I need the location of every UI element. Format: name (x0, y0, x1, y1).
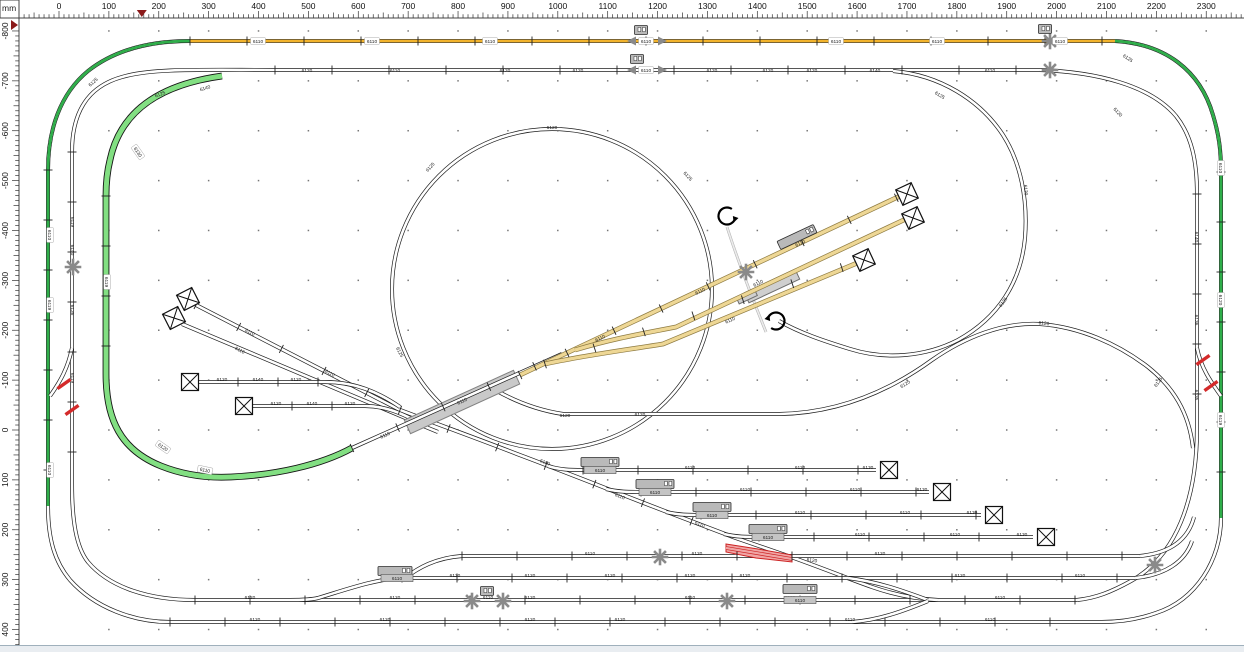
track-part-label: 6120 (245, 595, 256, 601)
track-part-label: 6120 (525, 617, 536, 623)
track-part-label: 6120 (707, 68, 718, 74)
ruler-left-number: -800 (0, 22, 10, 39)
buffer-stop-icon[interactable] (881, 462, 898, 479)
uncoupler-star-icon[interactable] (465, 594, 479, 608)
window-bottom-edge (0, 645, 1244, 652)
track-part-label: 6110 (831, 39, 842, 45)
track-part-label: 6120 (250, 617, 261, 623)
ruler-top-number: 1000 (548, 1, 567, 11)
track-part-label: 6130 (1017, 532, 1028, 538)
uncoupler-star-icon[interactable] (66, 260, 80, 274)
track-part-label: 6110 (900, 510, 911, 516)
track-part-label: 6140 (307, 401, 318, 407)
locomotive-icon[interactable] (1039, 25, 1052, 34)
ruler-left-number: 400 (0, 622, 10, 636)
ruler-left-number: 100 (0, 473, 10, 487)
track-part-label: 6120 (685, 573, 696, 579)
track-part-label: 6120 (740, 573, 751, 579)
uncoupler-star-icon[interactable] (720, 594, 734, 608)
ruler-left-number: -200 (0, 321, 10, 338)
ruler-top-number: 400 (251, 1, 265, 11)
track-part-label: 6110 (795, 598, 806, 604)
track-part-label: 6120 (635, 412, 646, 418)
ruler-left-number: 0 (0, 427, 10, 432)
ruler-top-number: 700 (401, 1, 415, 11)
track-part-label: 6120 (525, 573, 536, 579)
track-part-label: 6110 (1075, 573, 1086, 579)
track-part-label: 6110 (46, 465, 52, 476)
track-part-label: 6110 (932, 39, 943, 45)
ruler-top-number: 1400 (748, 1, 767, 11)
track-part-label: 6120 (560, 413, 571, 419)
ruler-top-number: 800 (451, 1, 465, 11)
track-part-label: 6110 (707, 513, 718, 519)
track-part-label: 6110 (855, 532, 866, 538)
ruler-top-number: 200 (152, 1, 166, 11)
track-part-label: 6120 (500, 68, 511, 74)
ruler-left-number: -400 (0, 222, 10, 239)
ruler-left-number: -300 (0, 272, 10, 289)
track-part-label: 6120 (547, 125, 558, 131)
ruler-top-number: 1200 (648, 1, 667, 11)
locomotive-icon[interactable] (783, 585, 817, 594)
track-part-label: 6110 (995, 595, 1006, 601)
track-part-label: 6136 (1193, 315, 1199, 326)
track-part-label: 6110 (585, 551, 596, 557)
locomotive-icon[interactable] (749, 525, 787, 534)
track-part-label: 6120 (955, 573, 966, 579)
uncoupler-star-icon[interactable] (739, 265, 753, 279)
ruler-left-number: 200 (0, 522, 10, 536)
ruler-top-number: 0 (57, 1, 62, 11)
track-part-label: 6110 (795, 465, 806, 471)
track-part-label: 6120 (1217, 295, 1223, 306)
track-part-label: 6119 (46, 300, 52, 311)
track-part-label: 6110 (650, 490, 661, 496)
track-part-label: 6110 (253, 39, 264, 45)
track-part-label: 6110 (685, 465, 696, 471)
ruler-left-number: -500 (0, 172, 10, 189)
track-part-label: 6120 (1038, 320, 1050, 327)
ruler-top-number: 1900 (997, 1, 1016, 11)
track-part-label: 6120 (605, 573, 616, 579)
buffer-stop-icon[interactable] (182, 374, 199, 391)
track-part-label: 6140 (870, 68, 881, 74)
track-part-label: 6120 (302, 68, 313, 74)
ruler-top-number: 100 (102, 1, 116, 11)
track-part-label: 6120 (1022, 184, 1029, 195)
track-part-label: 6140 (253, 377, 264, 383)
track-part-label: 6110 (390, 68, 401, 74)
ruler-top-number: 1800 (947, 1, 966, 11)
track-part-label: 6130 (917, 487, 928, 493)
ruler-top-number: 1300 (698, 1, 717, 11)
ruler-top[interactable]: 0100200300400500600700800900100011001200… (0, 0, 1244, 18)
ruler-left-number: -700 (0, 72, 10, 89)
ruler-top-number: 1100 (599, 1, 618, 11)
locomotive-icon[interactable] (481, 587, 494, 596)
track-part-label: 6119 (1217, 415, 1223, 426)
ruler-top-number: 300 (202, 1, 216, 11)
track-part-label: 6120 (217, 377, 228, 383)
track-part-label: 6110 (641, 39, 652, 45)
track-plan-canvas[interactable]: 6110611061106110611061106110612061106120… (0, 0, 1244, 652)
track-part-label: 6110 (850, 487, 861, 493)
locomotive-icon[interactable] (636, 480, 674, 489)
track-part-label: 6119 (69, 373, 75, 384)
locomotive-icon[interactable] (581, 458, 619, 467)
ruler-left-number: -600 (0, 122, 10, 139)
track-part-label: 6110 (795, 510, 806, 516)
ruler-left-number: 300 (0, 572, 10, 586)
track-part-label: 6110 (740, 487, 751, 493)
track-part-label: 6110 (392, 576, 403, 582)
track-part-label: 6130 (863, 465, 874, 471)
track-part-label: 6120 (380, 617, 391, 623)
track-part-label: 6135 (1193, 390, 1199, 401)
track-part-label: 6120 (573, 68, 584, 74)
uncoupler-star-icon[interactable] (496, 594, 510, 608)
ruler-top-number: 2200 (1147, 1, 1166, 11)
uncoupler-star-icon[interactable] (1148, 558, 1162, 572)
track-part-label: 6110 (1055, 39, 1066, 45)
uncoupler-star-icon[interactable] (653, 550, 667, 564)
track-part-label: 6120 (763, 68, 774, 74)
track-part-label: 6120 (271, 401, 282, 407)
track-part-label: 6120 (692, 551, 703, 557)
track-part-label: 6120 (875, 551, 886, 557)
ruler-top-number: 900 (501, 1, 515, 11)
buffer-stop-icon[interactable] (236, 398, 253, 415)
ruler-top-number: 2100 (1097, 1, 1116, 11)
buffer-stop-icon[interactable] (986, 507, 1003, 524)
track-part-label: 6110 (985, 617, 996, 623)
track-part-label: 6110 (685, 595, 696, 601)
track-part-label: 6136 (69, 305, 75, 316)
track-part-label: 6110 (641, 68, 652, 74)
track-part-label: 6110 (950, 532, 961, 538)
track-part-label: 6120 (615, 617, 626, 623)
track-part-label: 6110 (1217, 163, 1223, 174)
ruler-top-number: 1500 (798, 1, 817, 11)
track-part-label: 6120 (450, 573, 461, 579)
ruler-top-number: 600 (351, 1, 365, 11)
track-part-label: 6110 (485, 39, 496, 45)
locomotive-icon[interactable] (693, 503, 731, 512)
track-part-label: 6120 (291, 377, 302, 383)
track-part-label: 6110 (763, 535, 774, 541)
track-part-label: 6110 (483, 595, 494, 601)
track-part-label: 6120 (525, 595, 536, 601)
buffer-stop-icon[interactable] (934, 484, 951, 501)
track-planner-window: 6110611061106110611061106110612061106120… (0, 0, 1244, 652)
track-part-label: 6120 (807, 68, 818, 74)
buffer-stop-icon[interactable] (1038, 529, 1055, 546)
ruler-top-number: 2000 (1047, 1, 1066, 11)
track-part-label: 6110 (595, 468, 606, 474)
track-part-label: 6119 (69, 217, 75, 228)
track-part-label: 6120 (390, 595, 401, 601)
track-part-label: 6120 (345, 401, 356, 407)
locomotive-icon[interactable] (631, 55, 644, 64)
ruler-top-number: 1700 (897, 1, 916, 11)
track-part-label: 6140 (69, 245, 75, 256)
ruler-top-number: 2300 (1197, 1, 1216, 11)
track-part-label: 6119 (103, 277, 109, 288)
ruler-left-number: -100 (0, 371, 10, 388)
ruler-top-number: 500 (301, 1, 315, 11)
locomotive-icon[interactable] (635, 26, 648, 35)
uncoupler-star-icon[interactable] (1043, 63, 1057, 77)
track-part-label: 6110 (985, 68, 996, 74)
ruler-top-number: 1600 (848, 1, 867, 11)
track-part-label: 6110 (845, 617, 856, 623)
track-part-label: 6110 (46, 230, 52, 241)
ruler-unit-label: mm (2, 3, 19, 17)
track-part-label: 6110 (367, 39, 378, 45)
ruler-left[interactable]: -800-700-600-500-400-300-200-10001002003… (0, 18, 19, 652)
track-part-label: 6130 (967, 510, 978, 516)
track-part-label: 6140 (1193, 232, 1199, 243)
